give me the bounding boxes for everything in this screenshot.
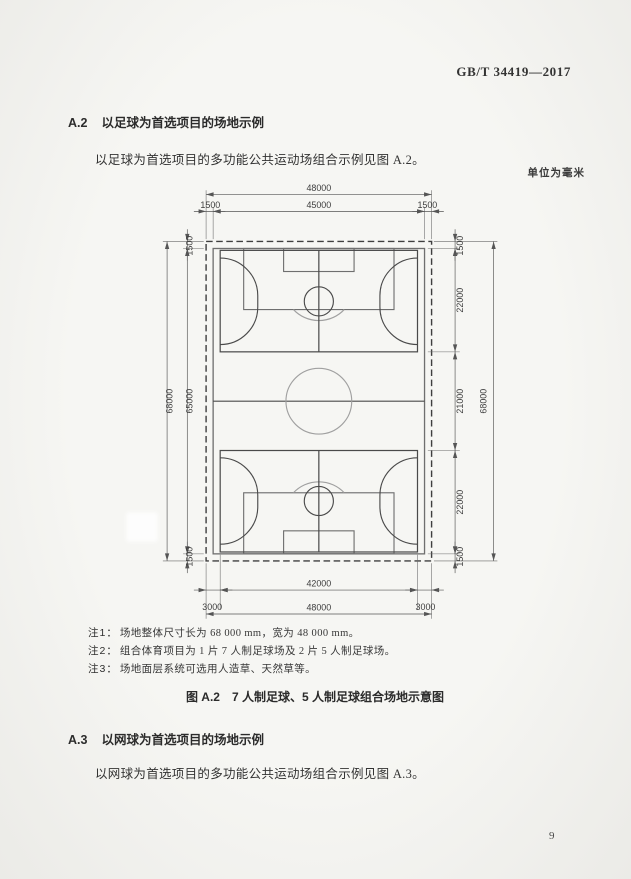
svg-text:1500: 1500	[455, 547, 465, 567]
section-a2-number: A.2	[68, 116, 87, 130]
section-a2-title: 以足球为首选项目的场地示例	[101, 116, 264, 130]
dimensions-top: 480001500450001500	[194, 183, 444, 239]
svg-text:42000: 42000	[306, 579, 331, 589]
note-3-label: 注3：	[88, 663, 118, 676]
svg-text:22000: 22000	[455, 490, 465, 515]
figure-a2-diagram: 4800015004500015004200030003000480006800…	[153, 178, 503, 622]
scan-watermark-blob	[126, 512, 158, 542]
note-row: 注2： 组合体育项目为 1 片 7 人制足球场及 2 片 5 人制足球场。	[88, 645, 518, 658]
svg-text:3000: 3000	[202, 602, 222, 612]
svg-text:68000: 68000	[165, 389, 175, 414]
svg-text:48000: 48000	[306, 183, 331, 193]
section-a3-paragraph: 以网球为首选项目的多功能公共运动场组合示例见图 A.3。	[95, 763, 425, 782]
note-1-text: 场地整体尺寸长为 68 000 mm，宽为 48 000 mm。	[120, 627, 360, 640]
section-a2-paragraph: 以足球为首选项目的多功能公共运动场组合示例见图 A.2。	[95, 149, 425, 168]
note-2-label: 注2：	[88, 645, 118, 658]
svg-text:1500: 1500	[185, 547, 195, 567]
figure-caption-number: 图 A.2	[186, 690, 220, 704]
figure-notes: 注1： 场地整体尺寸长为 68 000 mm，宽为 48 000 mm。 注2：…	[88, 627, 518, 681]
section-a3-number: A.3	[68, 733, 87, 747]
page-number: 9	[549, 830, 555, 842]
five-a-side-field-bottom	[220, 451, 417, 552]
svg-text:1500: 1500	[200, 200, 220, 210]
svg-text:65000: 65000	[185, 389, 195, 414]
note-row: 注3： 场地面层系统可选用人造草、天然草等。	[88, 663, 518, 676]
svg-text:3000: 3000	[416, 602, 436, 612]
section-a3-heading: A.3以网球为首选项目的场地示例	[68, 729, 264, 748]
dimensions-bottom: 420003000300048000	[194, 555, 444, 619]
note-2-text: 组合体育项目为 1 片 7 人制足球场及 2 片 5 人制足球场。	[120, 645, 396, 658]
section-a2-heading: A.2以足球为首选项目的场地示例	[68, 112, 264, 131]
figure-caption: 图 A.27 人制足球、5 人制足球组合场地示意图	[145, 688, 485, 705]
section-a3-title: 以网球为首选项目的场地示例	[101, 733, 264, 747]
dimensions-right: 1500220002100022000150068000	[428, 229, 498, 573]
note-row: 注1： 场地整体尺寸长为 68 000 mm，宽为 48 000 mm。	[88, 627, 518, 640]
document-page: { "header": { "standard_number": "GB/T 3…	[0, 0, 631, 879]
svg-text:45000: 45000	[306, 200, 331, 210]
svg-text:1500: 1500	[417, 200, 437, 210]
dimensions-left: 680001500650001500	[163, 229, 204, 573]
standard-number: GB/T 34419—2017	[456, 64, 571, 80]
svg-text:1500: 1500	[455, 236, 465, 256]
note-3-text: 场地面层系统可选用人造草、天然草等。	[120, 663, 316, 676]
svg-text:68000: 68000	[479, 389, 489, 414]
figure-caption-title: 7 人制足球、5 人制足球组合场地示意图	[232, 690, 444, 704]
svg-text:21000: 21000	[455, 389, 465, 414]
unit-note: 单位为毫米	[528, 165, 586, 180]
five-a-side-field-top	[220, 250, 417, 351]
note-1-label: 注1：	[88, 627, 118, 640]
svg-text:48000: 48000	[306, 603, 331, 613]
svg-text:22000: 22000	[455, 288, 465, 313]
